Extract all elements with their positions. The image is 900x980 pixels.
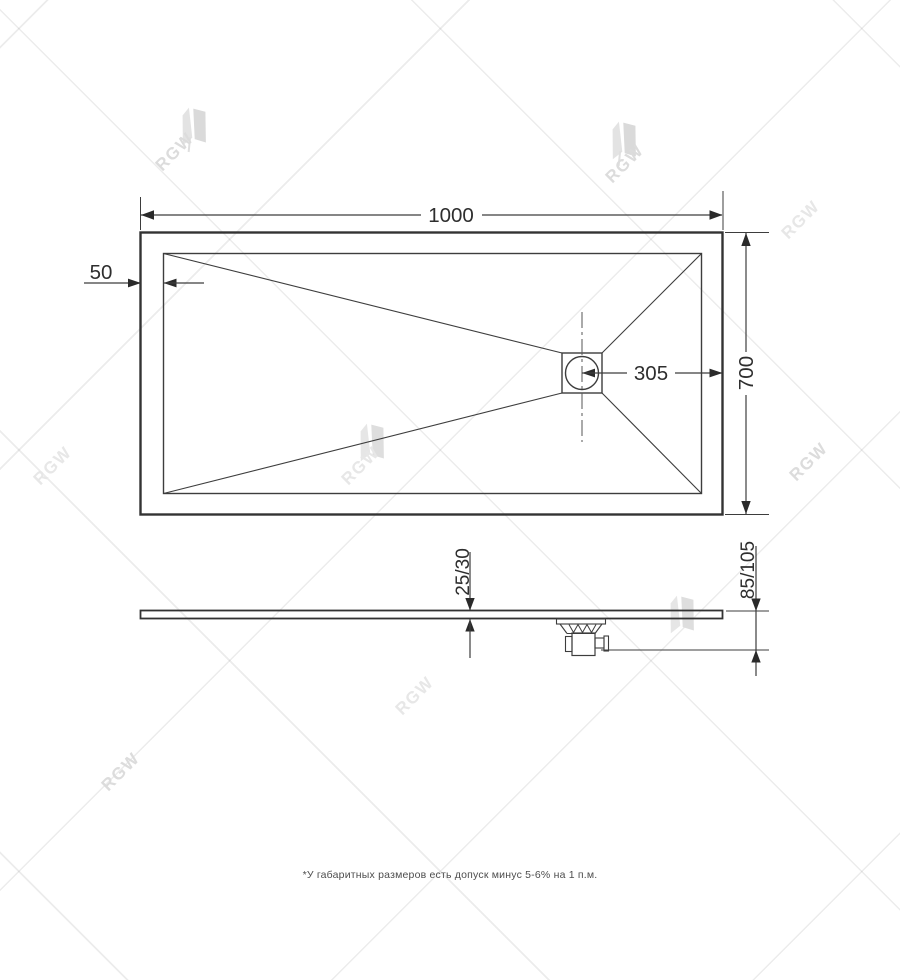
slope-line-bottom-right [602, 393, 702, 494]
siphon-outlet-flange [604, 636, 609, 651]
height-dimension-label: 85/105 [738, 541, 759, 599]
side-view [141, 611, 723, 656]
siphon-body [572, 633, 595, 656]
siphon-left-tab [566, 637, 573, 652]
drain-flange-side [560, 624, 567, 634]
arrow-right-icon [128, 279, 141, 288]
dimension-width-1000: 1000 [141, 191, 724, 230]
slope-line-bottom-left [164, 393, 563, 494]
depth-dimension-label: 700 [735, 356, 758, 390]
arrow-right-icon [710, 210, 723, 219]
tray-profile [141, 611, 723, 619]
arrow-down-icon [751, 599, 760, 612]
arrow-right-icon [710, 369, 723, 378]
thickness-dimension-label: 25/30 [453, 548, 474, 596]
drain-flange [557, 619, 606, 624]
width-dimension-label: 1000 [428, 204, 474, 227]
arrow-left-icon [141, 210, 154, 219]
drain-trap-assembly [557, 619, 609, 656]
drain-offset-label: 305 [634, 362, 668, 385]
arrow-down-icon [741, 501, 750, 514]
arrow-up-icon [741, 233, 750, 246]
dimension-height-85-105: 85/105 [601, 541, 769, 676]
arrow-down-icon [465, 598, 474, 611]
dimension-depth-700: 700 [725, 233, 769, 515]
slope-line-top-right [602, 254, 702, 354]
shower-tray-drawing: RGW RGW RGW RGW RGW RGW RGW RGW [0, 0, 900, 900]
slope-line-top-left [164, 254, 563, 354]
siphon-outlet-pipe [595, 638, 604, 648]
drawing-svg: 1000 50 305 700 [0, 0, 900, 900]
drain-grate-marks [569, 625, 596, 633]
rim-dimension-label: 50 [90, 261, 113, 284]
tolerance-footnote: *У габаритных размеров есть допуск минус… [0, 869, 900, 881]
dimension-thickness-25-30: 25/30 [453, 548, 475, 658]
arrow-up-icon [751, 650, 760, 663]
dimension-rim-50: 50 [84, 261, 204, 287]
